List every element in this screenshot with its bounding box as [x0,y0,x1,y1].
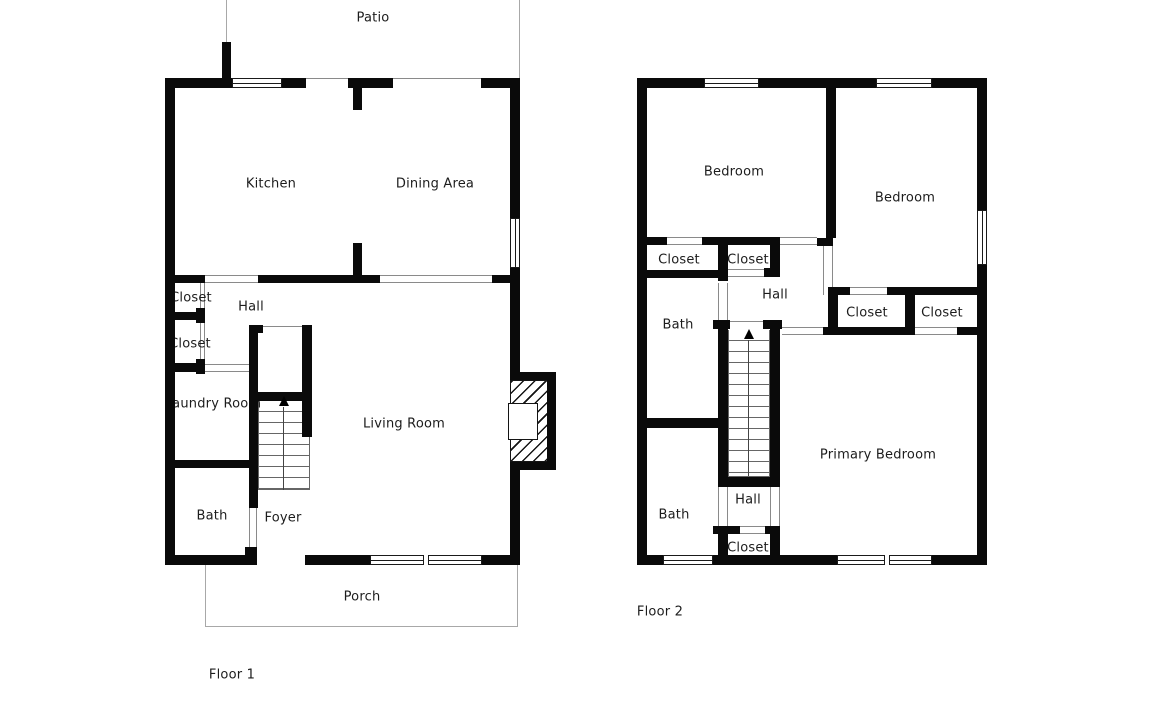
wall [932,555,987,565]
wall [196,308,205,323]
wall [196,359,205,374]
room-label-living-room: Living Room [363,417,445,432]
wall [245,547,257,555]
wall [165,275,205,283]
wall [770,245,780,269]
wall [482,555,520,565]
wall [718,534,728,555]
room-label-hall-lower: Hall [735,493,761,508]
wall [637,270,728,278]
room-label-laundry-room: Laundry Room [165,397,262,412]
room-label-bedroom-left: Bedroom [704,165,764,180]
wall [165,363,196,372]
bedroom-door-opening [780,237,817,238]
wall [492,275,510,283]
bath-door-opening [249,508,250,547]
fireplace-wall [520,462,556,470]
bath-door-opening [718,283,719,320]
primary-entrance-opening [782,334,823,335]
wall [282,78,306,88]
room-label-closet-upper: Closet [170,291,212,306]
room-label-porch: Porch [344,590,381,605]
wall [510,268,520,372]
wall [905,295,915,335]
room-label-dining-area: Dining Area [396,177,474,192]
stair-landing-edge [718,477,780,487]
kitchen-hall-opening [205,282,258,283]
wall [887,287,977,295]
room-label-hall: Hall [238,300,264,315]
closet-opening [667,237,702,238]
patio-wall-stub [222,42,231,78]
wall [258,325,263,333]
floor-1-title: Floor 1 [209,668,255,683]
fireplace-firebox [508,403,538,440]
room-label-patio: Patio [357,11,390,26]
wall [702,237,780,245]
closet-opening [850,287,887,288]
patio-outline [519,0,520,78]
wall [165,312,196,320]
bedroom-door-opening [780,244,817,245]
wall [713,526,740,534]
closet-opening [915,327,957,328]
wall [637,78,647,565]
laundry-opening [205,371,250,372]
wall [713,320,730,329]
bath-door-opening [727,283,728,320]
room-label-closet-hall-lower: Closet [727,541,769,556]
wall [770,320,780,487]
room-label-closet-lower: Closet [169,337,211,352]
room-label-closet-primary: Closet [921,306,963,321]
wall [770,534,780,555]
wall [823,327,905,335]
room-label-closet-hall-upper: Closet [727,253,769,268]
stairs-direction-line [748,340,749,476]
wall [977,265,987,565]
closet-opening [740,526,765,527]
patio-slider-opening [393,78,481,79]
closet-opening [740,533,765,534]
room-label-bath-lower: Bath [658,508,689,523]
bath-door-opening [727,487,728,526]
primary-door-opening [779,487,780,526]
closet-opening [728,269,764,270]
wall [713,555,837,565]
wall [828,287,850,295]
wall [510,78,520,218]
wall [817,238,833,246]
room-label-bedroom-right: Bedroom [875,191,935,206]
wall [258,275,380,283]
wall [757,78,877,88]
primary-door-opening [770,487,771,526]
wall [302,325,312,437]
window [428,555,482,565]
closet-opening [850,294,887,295]
fireplace-wall [510,372,520,380]
wall [637,78,705,88]
wall [765,526,780,534]
wall [249,325,258,508]
patio-outline [226,0,227,43]
room-label-kitchen: Kitchen [246,177,296,192]
window [663,555,713,565]
window [837,555,885,565]
wall [977,78,987,210]
wall [637,237,667,245]
wall [353,243,362,275]
wall [348,78,393,88]
stairs-up-arrow-icon [744,329,754,339]
window [977,210,987,265]
dining-living-opening [380,275,492,276]
room-label-closet-bedroom-right: Closet [846,306,888,321]
stairwell-top-opening [730,321,763,322]
bedroom-door-opening [823,246,824,295]
closet-opening [728,276,764,277]
window [876,78,932,88]
room-label-foyer: Foyer [264,511,301,526]
window [889,555,932,565]
room-label-bath: Bath [196,509,227,524]
wall [763,320,782,329]
fireplace-wall [510,462,520,470]
room-label-primary-bedroom: Primary Bedroom [820,448,936,463]
wall [165,460,250,468]
window [704,78,759,88]
wall [510,470,520,565]
wall [826,88,836,238]
laundry-opening [205,364,250,365]
porch-outline [205,626,518,627]
floor-plan-screen: Patio Kitchen Dining Area Closet Hall Cl… [0,0,1152,720]
wall [637,418,718,428]
wall [764,268,780,277]
wall [165,555,257,565]
stairs-direction-line [283,407,284,490]
porch-outline [205,565,206,627]
bath-door-opening [718,487,719,526]
dining-living-opening [380,282,492,283]
primary-entrance-opening [782,327,823,328]
wall [353,88,362,110]
closet-opening [667,244,702,245]
bath-door-opening [256,508,257,547]
wall [637,555,663,565]
patio-door-opening [306,78,348,79]
wall [305,555,370,565]
floor-2-title: Floor 2 [637,605,683,620]
room-label-bath-upper: Bath [662,318,693,333]
staircase-floor2 [728,330,770,477]
wall [718,320,728,487]
wall [165,78,232,88]
room-label-hall-upper: Hall [762,288,788,303]
fireplace-wall [547,372,556,470]
wall [165,78,175,565]
stairs-up-arrow-icon [279,396,289,406]
wall [957,327,982,335]
room-label-closet-bedroom-left: Closet [658,253,700,268]
window [510,218,520,268]
stairwell-top-opening [263,326,302,327]
closet-opening [915,334,957,335]
window [232,78,282,88]
kitchen-hall-opening [205,275,258,276]
porch-outline [517,565,518,627]
window [370,555,424,565]
